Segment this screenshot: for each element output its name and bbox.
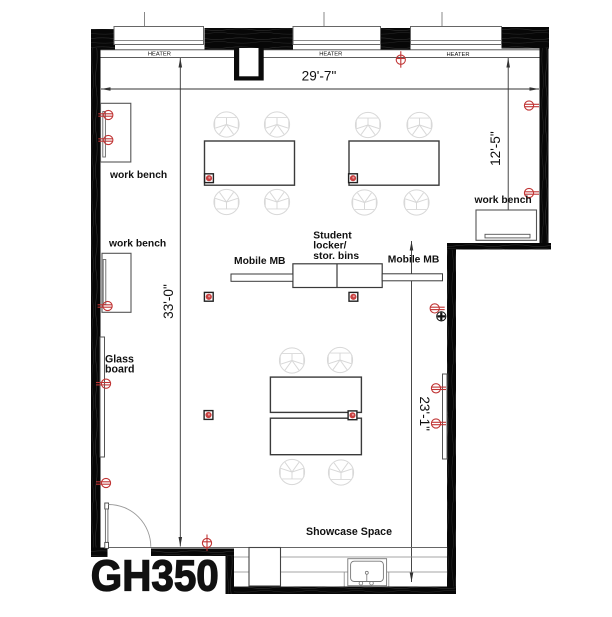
svg-text:work bench: work bench [108, 239, 166, 250]
svg-text:GH350: GH350 [91, 551, 219, 600]
svg-text:HEATER: HEATER [446, 52, 469, 58]
svg-text:Mobile MB: Mobile MB [234, 256, 285, 267]
svg-text:23'-1": 23'-1" [417, 396, 432, 431]
svg-text:HEATER: HEATER [148, 51, 171, 57]
svg-text:Mobile MB: Mobile MB [388, 254, 439, 265]
svg-text:board: board [105, 364, 134, 376]
svg-text:stor. bins: stor. bins [313, 251, 359, 262]
svg-text:12'-5": 12'-5" [488, 131, 503, 166]
svg-text:work bench: work bench [109, 170, 167, 181]
svg-text:33'-0": 33'-0" [161, 284, 176, 319]
svg-text:29'-7": 29'-7" [302, 69, 337, 84]
svg-text:work bench: work bench [474, 195, 532, 206]
svg-text:Showcase Space: Showcase Space [306, 526, 392, 538]
svg-text:HEATER: HEATER [319, 52, 342, 58]
